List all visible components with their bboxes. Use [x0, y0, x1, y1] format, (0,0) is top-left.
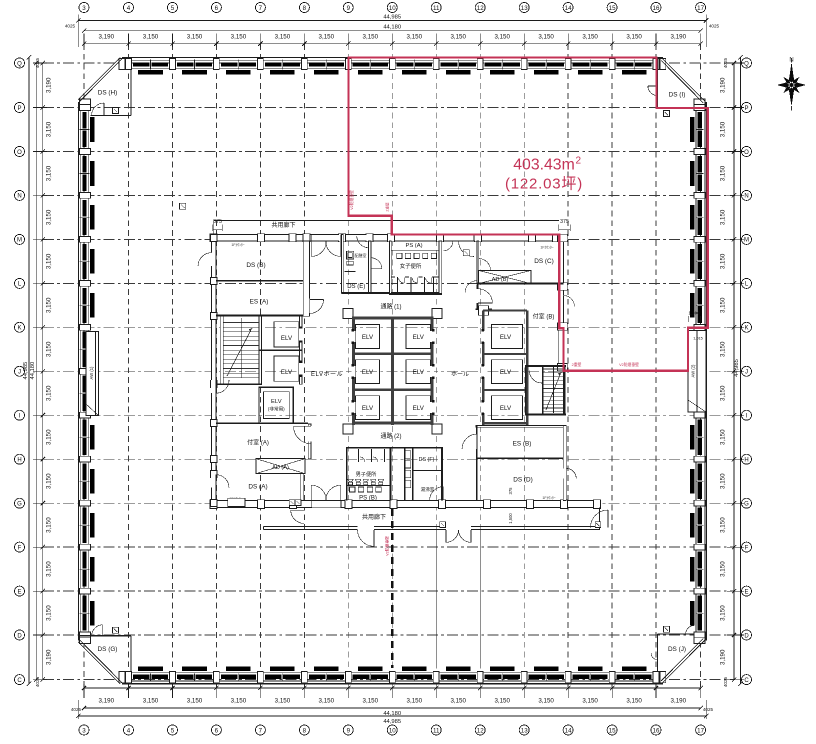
svg-text:3,150: 3,150: [720, 429, 727, 445]
svg-text:F: F: [18, 545, 22, 551]
svg-text:ELV: ELV: [362, 405, 374, 412]
svg-text:ELV: ELV: [413, 334, 425, 341]
svg-text:V2防煙垂壁: V2防煙垂壁: [349, 190, 354, 210]
svg-text:DS (D): DS (D): [513, 477, 533, 484]
svg-text:3,150: 3,150: [720, 605, 727, 621]
svg-text:DS (G): DS (G): [98, 646, 118, 653]
svg-text:3,150: 3,150: [720, 473, 727, 489]
svg-text:44,985: 44,985: [23, 362, 29, 380]
svg-text:44,180: 44,180: [383, 25, 401, 31]
svg-text:1Fｶｳﾝﾀｰ: 1Fｶｳﾝﾀｰ: [542, 495, 555, 500]
svg-text:13: 13: [521, 727, 528, 734]
svg-text:3,150: 3,150: [46, 253, 53, 269]
svg-text:C: C: [17, 678, 22, 684]
svg-text:ELV: ELV: [413, 405, 425, 412]
svg-text:1,100: 1,100: [689, 311, 701, 316]
svg-text:3,190: 3,190: [46, 77, 53, 93]
svg-text:44,180: 44,180: [30, 362, 36, 380]
svg-text:3,150: 3,150: [538, 697, 554, 704]
svg-text:4025: 4025: [723, 57, 728, 68]
svg-text:1Fｶｳﾝﾀｰ: 1Fｶｳﾝﾀｰ: [231, 242, 244, 247]
svg-text:3,150: 3,150: [46, 209, 53, 225]
svg-text:14: 14: [565, 727, 572, 734]
svg-text:3,190: 3,190: [46, 649, 53, 665]
svg-text:3,150: 3,150: [46, 341, 53, 357]
svg-text:3,150: 3,150: [494, 697, 510, 704]
svg-text:D: D: [744, 633, 749, 639]
svg-text:ELV: ELV: [500, 369, 512, 376]
svg-text:3,150: 3,150: [46, 385, 53, 401]
svg-text:E: E: [17, 589, 21, 595]
svg-text:PS (B): PS (B): [359, 496, 377, 502]
svg-text:3,150: 3,150: [407, 697, 423, 704]
svg-text:4025: 4025: [65, 24, 76, 29]
svg-text:3,150: 3,150: [407, 34, 423, 41]
svg-text:403.43m: 403.43m: [513, 157, 574, 174]
svg-text:3,150: 3,150: [720, 385, 727, 401]
svg-text:16: 16: [653, 727, 660, 734]
svg-text:3,150: 3,150: [538, 34, 554, 41]
svg-text:3,150: 3,150: [143, 697, 159, 704]
svg-text:7: 7: [259, 727, 263, 734]
svg-text:ES (A): ES (A): [250, 299, 269, 306]
svg-text:3,150: 3,150: [187, 697, 203, 704]
svg-text:H: H: [744, 458, 748, 464]
svg-text:44,985: 44,985: [383, 14, 401, 20]
svg-text:K: K: [17, 326, 21, 332]
svg-text:3,150: 3,150: [275, 34, 291, 41]
svg-text:DS (J): DS (J): [668, 646, 686, 653]
svg-text:3,150: 3,150: [363, 34, 379, 41]
svg-text:15: 15: [609, 5, 616, 12]
svg-text:4025: 4025: [35, 57, 40, 68]
svg-text:6: 6: [215, 5, 219, 12]
svg-text:ELV: ELV: [362, 369, 374, 376]
svg-text:AD (A): AD (A): [272, 465, 289, 471]
svg-text:N: N: [17, 194, 21, 200]
svg-text:10: 10: [389, 5, 396, 12]
svg-text:9: 9: [347, 727, 351, 734]
svg-text:DS (C): DS (C): [534, 258, 554, 265]
svg-text:375: 375: [508, 487, 513, 495]
svg-text:AD (B): AD (B): [492, 277, 509, 283]
svg-text:3,150: 3,150: [494, 34, 510, 41]
svg-text:DS (E): DS (E): [347, 284, 365, 290]
svg-text:共用廊下: 共用廊下: [362, 513, 386, 521]
svg-text:4025: 4025: [71, 707, 82, 712]
svg-text:3,150: 3,150: [720, 253, 727, 269]
svg-text:O: O: [744, 150, 749, 156]
svg-text:3,150: 3,150: [582, 697, 598, 704]
svg-text:3,190: 3,190: [720, 649, 727, 665]
svg-text:M: M: [744, 238, 749, 244]
svg-text:付室 (A): 付室 (A): [247, 438, 269, 446]
svg-text:3,150: 3,150: [187, 34, 203, 41]
svg-text:M: M: [17, 238, 22, 244]
svg-text:4: 4: [127, 727, 131, 734]
svg-text:3,150: 3,150: [46, 561, 53, 577]
svg-text:3,150: 3,150: [275, 697, 291, 704]
svg-text:N: N: [744, 194, 748, 200]
svg-text:17: 17: [697, 727, 704, 734]
svg-text:DS (A): DS (A): [248, 484, 267, 491]
svg-text:4025: 4025: [35, 676, 40, 687]
svg-text:3,150: 3,150: [319, 697, 335, 704]
svg-text:11: 11: [433, 5, 440, 12]
svg-text:7: 7: [259, 5, 263, 12]
svg-text:3,150: 3,150: [46, 297, 53, 313]
svg-text:N: N: [789, 58, 793, 64]
svg-text:3,150: 3,150: [720, 121, 727, 137]
svg-text:1Fｶｳﾝﾀｰ: 1Fｶｳﾝﾀｰ: [540, 245, 553, 250]
svg-text:3,190: 3,190: [720, 77, 727, 93]
svg-text:V2防煙垂壁: V2防煙垂壁: [619, 362, 639, 367]
svg-text:V2防煙垂壁: V2防煙垂壁: [384, 536, 389, 556]
svg-text:ホール: ホール: [451, 371, 469, 378]
svg-text:D: D: [17, 633, 22, 639]
svg-text:375: 375: [213, 219, 222, 225]
svg-text:3,150: 3,150: [450, 697, 466, 704]
svg-text:3,150: 3,150: [46, 605, 53, 621]
svg-text:配膳室: 配膳室: [355, 252, 367, 258]
svg-text:ELV: ELV: [362, 334, 374, 341]
svg-text:3,150: 3,150: [143, 34, 159, 41]
svg-text:3,150: 3,150: [231, 697, 247, 704]
svg-text:E: E: [744, 589, 748, 595]
svg-text:3,190: 3,190: [99, 697, 115, 704]
svg-text:G: G: [744, 502, 749, 508]
svg-text:8: 8: [303, 727, 307, 734]
svg-text:3,150: 3,150: [582, 34, 598, 41]
svg-text:44,985: 44,985: [734, 359, 740, 377]
svg-text:3: 3: [82, 5, 86, 12]
svg-text:3,150: 3,150: [720, 165, 727, 181]
svg-text:5: 5: [171, 5, 175, 12]
svg-text:DS (H): DS (H): [98, 89, 118, 96]
svg-text:12: 12: [477, 5, 484, 12]
svg-text:Q: Q: [17, 61, 22, 67]
svg-text:3,190: 3,190: [99, 34, 115, 41]
svg-text:10: 10: [389, 727, 396, 734]
svg-text:ELV: ELV: [413, 369, 425, 376]
svg-text:PS (A): PS (A): [405, 243, 422, 249]
svg-text:14: 14: [565, 5, 572, 12]
svg-text:3,150: 3,150: [46, 121, 53, 137]
svg-text:3,150: 3,150: [319, 34, 335, 41]
svg-text:375: 375: [560, 219, 569, 225]
svg-text:ELV: ELV: [500, 405, 512, 412]
svg-text:男子便所: 男子便所: [356, 470, 377, 478]
svg-text:3,150: 3,150: [46, 429, 53, 445]
svg-text:2: 2: [576, 156, 582, 167]
svg-text:3,150: 3,150: [46, 517, 53, 533]
svg-text:女子便所: 女子便所: [400, 262, 422, 270]
svg-text:3,150: 3,150: [363, 697, 379, 704]
svg-text:8: 8: [303, 5, 307, 12]
svg-text:(122.03坪): (122.03坪): [505, 176, 583, 193]
svg-text:ELV: ELV: [271, 399, 282, 405]
svg-text:Q: Q: [744, 61, 749, 67]
svg-text:3,150: 3,150: [720, 297, 727, 313]
svg-text:共用廊下: 共用廊下: [271, 221, 295, 229]
svg-text:ELV: ELV: [281, 369, 293, 376]
svg-text:12: 12: [477, 727, 484, 734]
svg-text:4: 4: [127, 5, 131, 12]
svg-text:J: J: [745, 370, 748, 376]
svg-text:通路 (2): 通路 (2): [380, 432, 401, 440]
svg-text:P: P: [744, 106, 748, 112]
svg-text:4025: 4025: [723, 676, 728, 687]
svg-text:F: F: [745, 545, 749, 551]
svg-text:3,190: 3,190: [671, 697, 687, 704]
svg-text:9: 9: [347, 5, 351, 12]
svg-text:DS (B): DS (B): [246, 262, 265, 269]
svg-text:1,015: 1,015: [693, 337, 703, 341]
svg-text:O: O: [17, 150, 22, 156]
svg-text:3,190: 3,190: [671, 34, 687, 41]
svg-text:3,150: 3,150: [720, 517, 727, 533]
svg-text:K: K: [744, 326, 748, 332]
svg-text:13: 13: [521, 5, 528, 12]
svg-text:DS (I): DS (I): [669, 91, 686, 98]
svg-text:11: 11: [433, 727, 440, 734]
svg-text:AW (2): AW (2): [691, 364, 696, 377]
svg-text:AW (1): AW (1): [89, 366, 94, 379]
svg-text:6: 6: [215, 727, 219, 734]
svg-text:G: G: [17, 502, 22, 508]
svg-text:C: C: [744, 678, 749, 684]
svg-text:DS (F): DS (F): [419, 457, 435, 463]
svg-text:3,150: 3,150: [46, 165, 53, 181]
svg-text:3,150: 3,150: [626, 697, 642, 704]
svg-text:1,500: 1,500: [508, 513, 513, 524]
svg-text:P: P: [17, 106, 21, 112]
svg-text:4025: 4025: [709, 24, 720, 29]
svg-text:5: 5: [171, 727, 175, 734]
svg-text:3,150: 3,150: [626, 34, 642, 41]
svg-text:2重壁: 2重壁: [572, 362, 582, 367]
svg-text:通路 (1): 通路 (1): [380, 302, 401, 310]
svg-text:(非常用): (非常用): [268, 406, 285, 413]
svg-text:3,150: 3,150: [231, 34, 247, 41]
svg-text:ELV: ELV: [500, 334, 512, 341]
svg-text:H: H: [17, 458, 21, 464]
svg-text:44,985: 44,985: [383, 719, 401, 725]
svg-text:ELVホール: ELVホール: [311, 371, 343, 378]
svg-text:2重壁: 2重壁: [385, 202, 390, 212]
svg-text:3,150: 3,150: [720, 341, 727, 357]
svg-text:3,150: 3,150: [720, 561, 727, 577]
svg-text:ELV: ELV: [281, 335, 293, 342]
svg-text:3,150: 3,150: [450, 34, 466, 41]
svg-text:3,150: 3,150: [720, 209, 727, 225]
svg-text:J: J: [18, 370, 21, 376]
svg-text:17: 17: [697, 5, 704, 12]
svg-text:付室 (B): 付室 (B): [533, 313, 555, 321]
svg-text:3,150: 3,150: [46, 473, 53, 489]
svg-text:3: 3: [82, 727, 86, 734]
svg-text:4025: 4025: [703, 707, 714, 712]
svg-text:15: 15: [609, 727, 616, 734]
svg-text:16: 16: [653, 5, 660, 12]
svg-text:ES (B): ES (B): [513, 441, 532, 448]
